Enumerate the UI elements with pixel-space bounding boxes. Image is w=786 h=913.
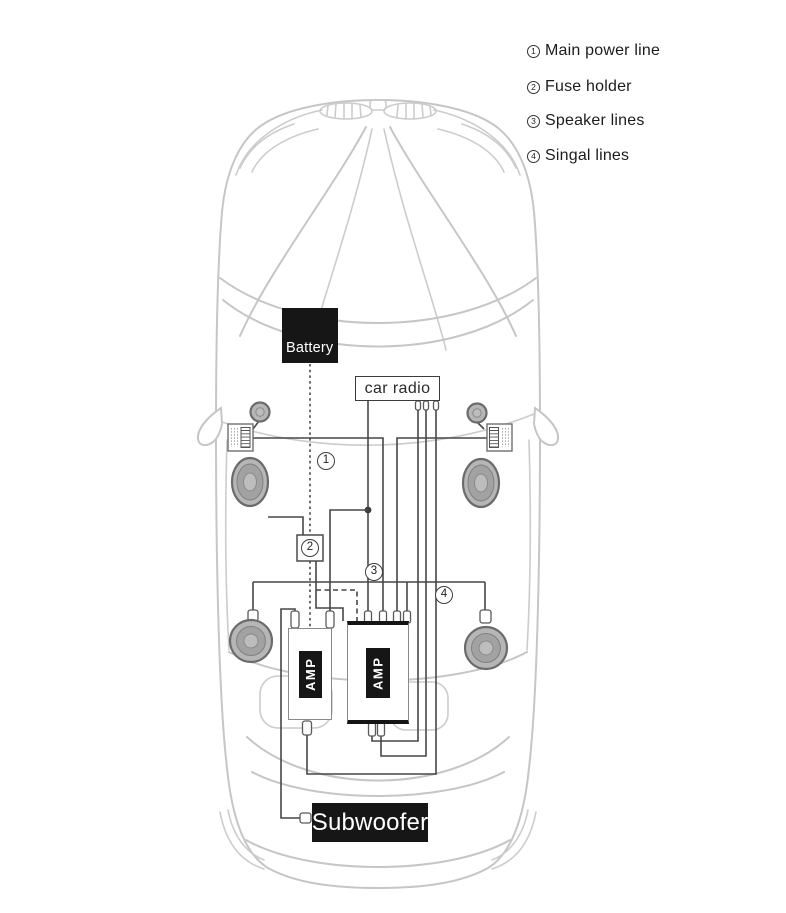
- amp-pin-icon: [369, 723, 376, 736]
- subwoofer-connector-icon: [300, 813, 311, 823]
- crossover-right-icon: [487, 424, 512, 451]
- legend-label: Fuse holder: [545, 78, 632, 96]
- diagram-canvas: [0, 0, 786, 913]
- radio-pin-icon: [416, 401, 421, 410]
- marker-speaker: 3: [365, 563, 383, 581]
- amp-right-label: AMP: [366, 648, 390, 698]
- legend-label: Speaker lines: [545, 112, 645, 130]
- legend-item-signal-lines: 4 Singal lines: [527, 147, 629, 165]
- marker-speaker-num: 3: [371, 566, 377, 578]
- wire-junction-left-amp: [330, 510, 368, 611]
- legend-num-circle-icon: 4: [527, 150, 540, 163]
- radio-pin-icon: [434, 401, 439, 410]
- door-line-right: [527, 440, 530, 650]
- marker-main-power-num: 1: [323, 455, 329, 467]
- tweeter-left-icon: [251, 403, 270, 422]
- grille-icon: [320, 100, 436, 119]
- marker-fuse-num: 2: [307, 542, 313, 554]
- headlight-right-icon: [434, 110, 520, 175]
- marker-signal-num: 4: [441, 589, 447, 601]
- legend-num-circle-icon: 2: [527, 81, 540, 94]
- wire-fuse-stub: [268, 517, 303, 535]
- amp-pin-icon: [378, 723, 385, 736]
- connector-pins: [248, 401, 491, 823]
- headlight-left-icon: [236, 110, 322, 175]
- wire-remote-line: [316, 590, 357, 621]
- marker-signal: 4: [435, 586, 453, 604]
- car-audio-wiring-diagram: Battery car radio AMP AMP Subwoofer 1 2 …: [0, 0, 786, 913]
- marker-fuse: 2: [301, 539, 319, 557]
- tweeter-right-icon: [468, 404, 487, 423]
- legend-item-speaker-lines: 3 Speaker lines: [527, 112, 645, 130]
- marker-main-power: 1: [317, 452, 335, 470]
- windshield-lines: [220, 278, 536, 445]
- amp-left-label: AMP: [299, 651, 322, 698]
- amp-right-box: AMP: [347, 621, 409, 724]
- battery-label: Battery: [286, 340, 333, 356]
- legend-label: Singal lines: [545, 147, 629, 165]
- crossover-left-icon: [228, 424, 253, 451]
- battery-box: Battery: [282, 308, 338, 363]
- rear-right-speaker-icon: [465, 627, 507, 669]
- legend-num-circle-icon: 3: [527, 115, 540, 128]
- speaker-connector-icon: [480, 610, 491, 623]
- car-radio-label: car radio: [365, 380, 431, 398]
- radio-pin-icon: [424, 401, 429, 410]
- mirror-left-icon: [198, 408, 222, 445]
- car-radio-box: car radio: [355, 376, 440, 401]
- front-left-speaker-icon: [232, 458, 268, 506]
- amp-pin-icon: [326, 611, 334, 628]
- subwoofer-box: Subwoofer: [312, 803, 428, 842]
- rear-left-speaker-icon: [230, 620, 272, 662]
- door-line-left: [226, 440, 229, 650]
- front-right-speaker-icon: [463, 459, 499, 507]
- amp-left-box: AMP: [288, 628, 332, 720]
- subwoofer-label: Subwoofer: [312, 809, 429, 837]
- legend-item-main-power: 1 Main power line: [527, 42, 660, 60]
- legend-item-fuse-holder: 2 Fuse holder: [527, 78, 632, 96]
- amp-pin-icon: [291, 611, 299, 628]
- legend-num-circle-icon: 1: [527, 45, 540, 58]
- amp-pin-icon: [303, 721, 312, 735]
- legend-label: Main power line: [545, 42, 660, 60]
- mirror-right-icon: [534, 408, 558, 445]
